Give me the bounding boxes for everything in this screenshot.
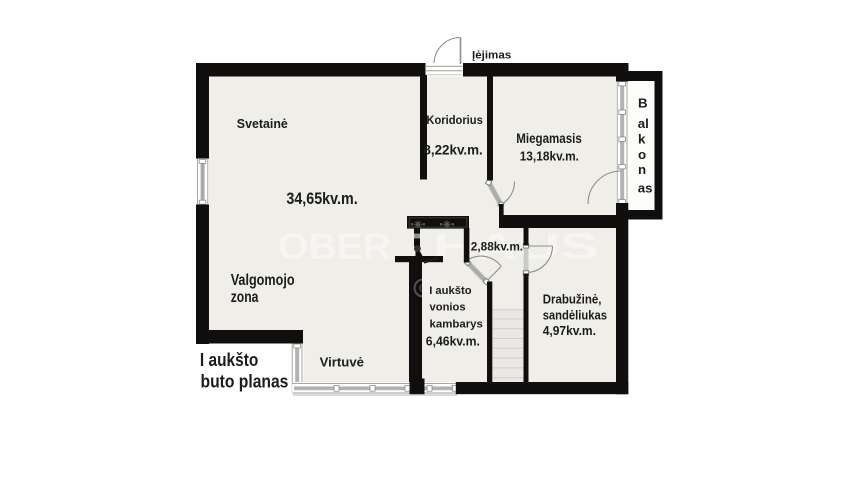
svg-text:zona: zona — [231, 289, 259, 306]
svg-text:Drabužinė,: Drabužinė, — [543, 291, 602, 306]
svg-text:kambarys: kambarys — [430, 318, 483, 330]
svg-text:o: o — [638, 147, 646, 162]
svg-text:8,22kv.m.: 8,22kv.m. — [423, 142, 482, 157]
svg-text:I aukšto: I aukšto — [200, 349, 258, 370]
svg-text:n: n — [638, 162, 646, 177]
svg-text:Įėjimas: Įėjimas — [472, 50, 511, 62]
svg-text:13,18kv.m.: 13,18kv.m. — [520, 149, 579, 164]
svg-text:2,88kv.m.: 2,88kv.m. — [471, 240, 523, 254]
svg-text:Miegamasis: Miegamasis — [516, 130, 582, 146]
svg-text:Koridorius: Koridorius — [426, 115, 482, 127]
svg-text:sandėliukas: sandėliukas — [543, 307, 607, 322]
svg-text:as: as — [638, 181, 653, 196]
svg-text:al: al — [638, 116, 649, 131]
svg-text:6,46kv.m.: 6,46kv.m. — [426, 333, 480, 348]
svg-text:vonios: vonios — [430, 301, 466, 313]
svg-text:Valgomojo: Valgomojo — [231, 272, 295, 289]
svg-text:OBER: OBER — [278, 226, 391, 267]
svg-text:B: B — [638, 95, 648, 110]
svg-text:34,65kv.m.: 34,65kv.m. — [286, 190, 357, 208]
svg-text:Virtuvė: Virtuvė — [320, 355, 364, 370]
svg-text:k: k — [638, 132, 646, 147]
svg-text:I aukšto: I aukšto — [429, 285, 471, 297]
svg-text:buto planas: buto planas — [201, 371, 289, 392]
svg-text:4,97kv.m.: 4,97kv.m. — [543, 323, 596, 338]
svg-text:Svetainė: Svetainė — [237, 116, 288, 131]
